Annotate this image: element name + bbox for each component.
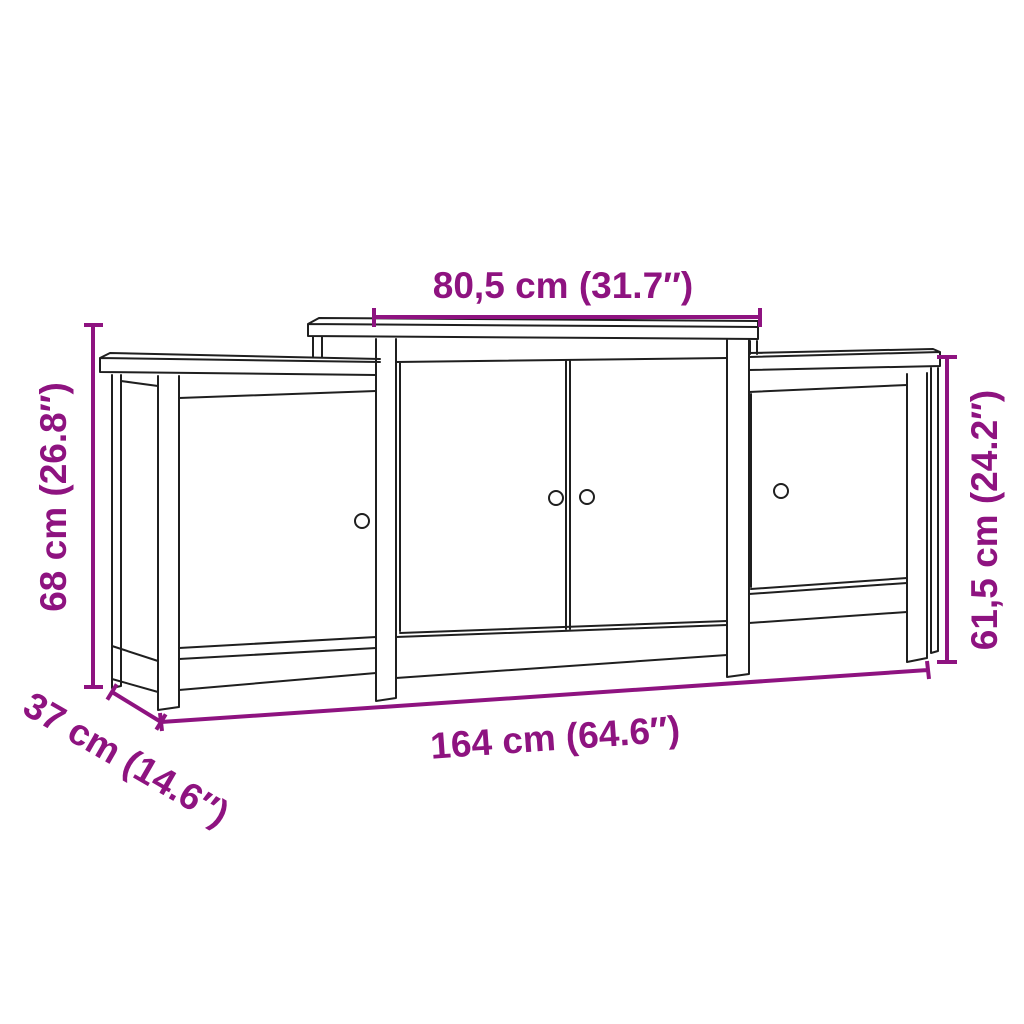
left-cabinet-section bbox=[100, 353, 380, 710]
sideboard-dimension-diagram: 80,5 cm (31.7″) 68 cm (26.8″) 61,5 cm (2… bbox=[0, 0, 1024, 1024]
dimension-left-height: 68 cm (26.8″) bbox=[33, 325, 103, 687]
right-back-leg bbox=[931, 368, 938, 653]
dimension-label-right-height: 61,5 cm (24.2″) bbox=[964, 390, 1005, 650]
left-side-panel-lines bbox=[112, 381, 158, 692]
center-door-split bbox=[566, 361, 570, 629]
center-left-post bbox=[376, 339, 396, 701]
left-front-leg bbox=[158, 376, 179, 710]
center-cabinet-section bbox=[308, 318, 758, 701]
sideboard-drawing bbox=[100, 318, 940, 710]
right-top-board bbox=[749, 349, 940, 370]
right-door-knob bbox=[774, 484, 788, 498]
dimension-label-top-width: 80,5 cm (31.7″) bbox=[433, 265, 693, 306]
diagram-stage: 80,5 cm (31.7″) 68 cm (26.8″) 61,5 cm (2… bbox=[0, 0, 1024, 1024]
center-back-leg-slivers bbox=[313, 337, 757, 357]
right-door-frame bbox=[749, 385, 907, 623]
center-left-door-knob bbox=[549, 491, 563, 505]
center-right-post bbox=[727, 340, 749, 677]
dimension-top-width: 80,5 cm (31.7″) bbox=[374, 265, 760, 327]
dimension-bottom-width: 164 cm (64.6″) bbox=[160, 661, 929, 767]
dimension-depth: 37 cm (14.6″) bbox=[17, 684, 236, 834]
left-top-board bbox=[100, 353, 380, 375]
dimension-label-left-height: 68 cm (26.8″) bbox=[33, 382, 74, 612]
dimension-right-height: 61,5 cm (24.2″) bbox=[937, 357, 1005, 662]
right-front-leg bbox=[907, 373, 927, 662]
center-door-frame bbox=[396, 358, 727, 678]
dimension-line-left bbox=[84, 325, 103, 687]
left-back-leg bbox=[112, 375, 121, 688]
dimension-label-bottom-width: 164 cm (64.6″) bbox=[429, 708, 681, 766]
left-door-knob bbox=[355, 514, 369, 528]
right-cabinet-section bbox=[749, 349, 940, 662]
dimension-label-depth: 37 cm (14.6″) bbox=[17, 684, 236, 834]
center-right-door-knob bbox=[580, 490, 594, 504]
dimension-line-right bbox=[937, 357, 957, 662]
left-door-frame bbox=[179, 391, 376, 690]
